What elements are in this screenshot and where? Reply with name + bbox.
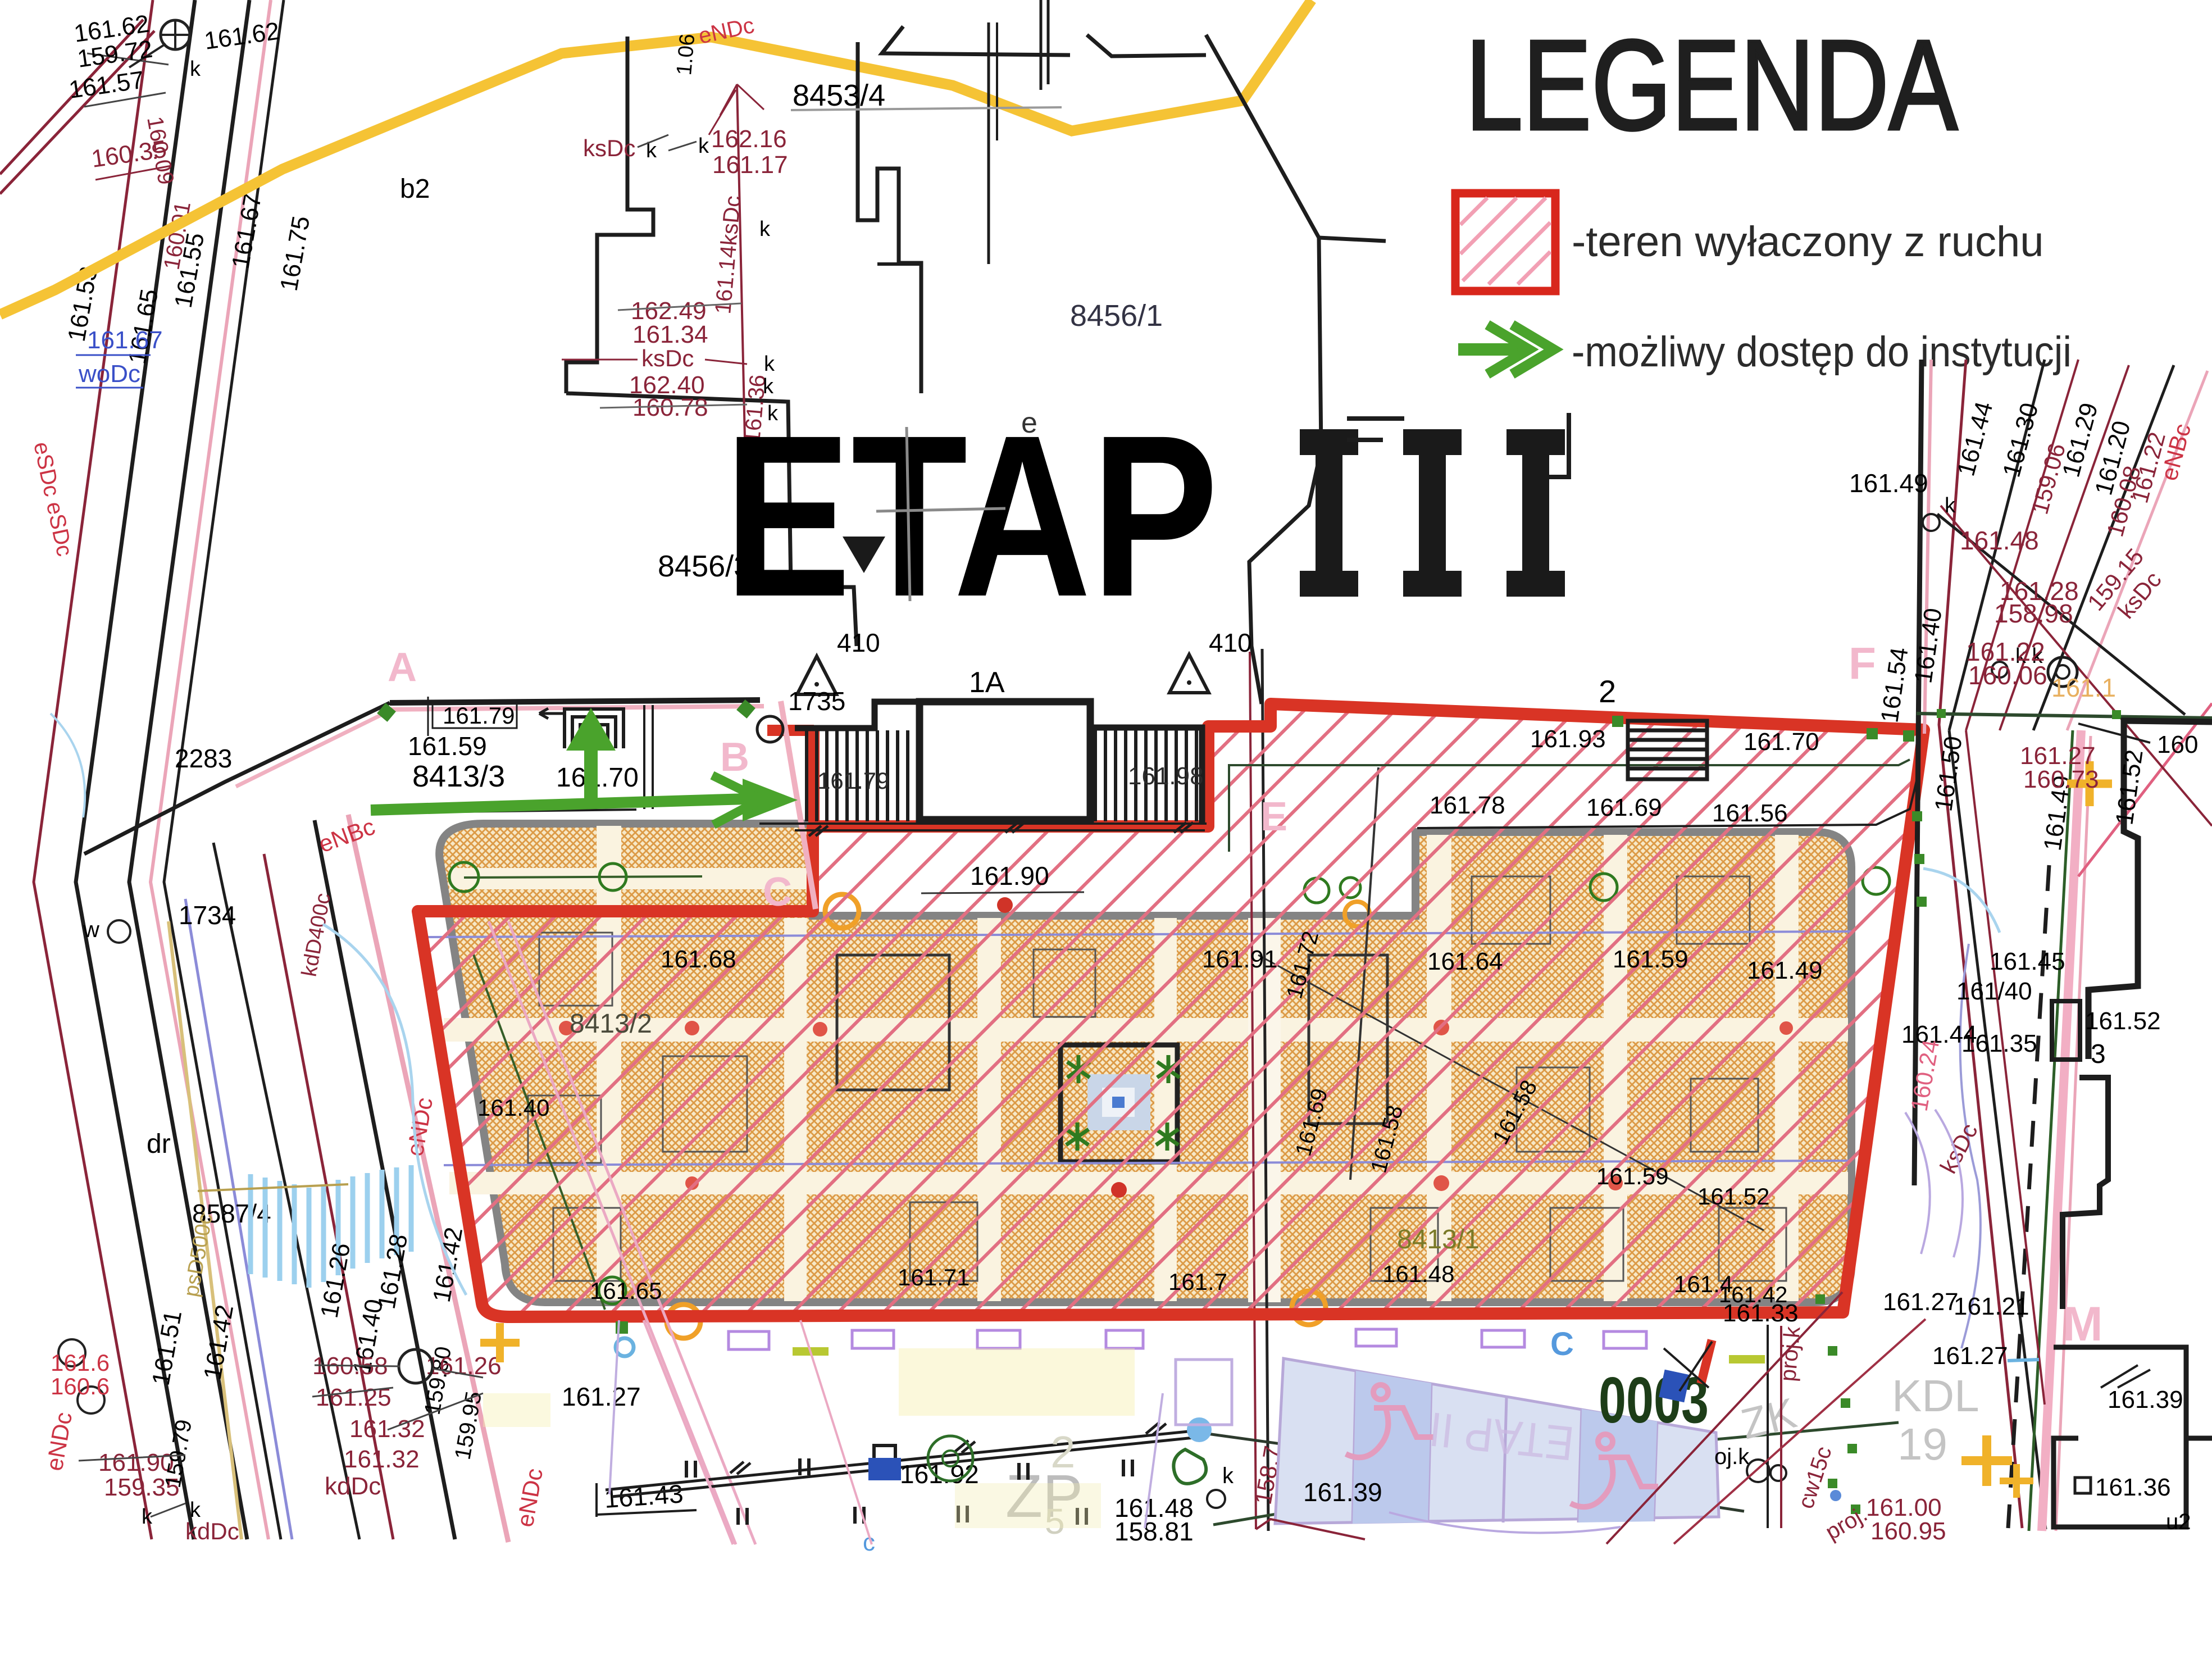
svg-text:161.56: 161.56 <box>1712 799 1788 827</box>
svg-text:8413/3: 8413/3 <box>412 760 505 793</box>
svg-text:-możliwy dostęp do instytucji: -możliwy dostęp do instytucji <box>1572 328 2072 376</box>
svg-text:k: k <box>1222 1463 1234 1488</box>
svg-text:161.39: 161.39 <box>1303 1478 1382 1507</box>
svg-text:160.95: 160.95 <box>1870 1517 1946 1545</box>
svg-text:kdDc: kdDc <box>185 1518 239 1544</box>
svg-text:3: 3 <box>2091 1039 2106 1069</box>
svg-text:161.65: 161.65 <box>590 1278 662 1304</box>
svg-text:8453/4: 8453/4 <box>793 79 885 112</box>
svg-text:woDc: woDc <box>78 360 140 388</box>
svg-text:161.52: 161.52 <box>1697 1183 1769 1210</box>
svg-text:161.26: 161.26 <box>426 1352 502 1380</box>
svg-text:161.69: 161.69 <box>1586 794 1662 821</box>
svg-text:158.98: 158.98 <box>1994 599 2073 628</box>
svg-text:161.93: 161.93 <box>1530 725 1606 753</box>
svg-text:161.25: 161.25 <box>316 1384 392 1411</box>
svg-text:8413/1: 8413/1 <box>1397 1225 1480 1255</box>
svg-text:161.49: 161.49 <box>1747 957 1823 984</box>
svg-text:8413/2: 8413/2 <box>570 1009 652 1039</box>
svg-text:161.6: 161.6 <box>51 1349 110 1376</box>
svg-text:161.39: 161.39 <box>2108 1386 2183 1413</box>
svg-text:ETAP: ETAP <box>724 387 1218 644</box>
svg-text:1.06: 1.06 <box>672 33 699 76</box>
svg-text:161.98: 161.98 <box>1128 762 1204 790</box>
svg-text:161.52: 161.52 <box>2085 1007 2161 1035</box>
svg-text:8456/1: 8456/1 <box>1070 299 1163 333</box>
svg-text:161.71: 161.71 <box>898 1264 970 1290</box>
svg-text:161/40: 161/40 <box>1956 978 2032 1005</box>
svg-text:160: 160 <box>2157 731 2198 758</box>
svg-text:161.78: 161.78 <box>1430 792 1505 819</box>
svg-text:oj.k: oj.k <box>1714 1444 1750 1469</box>
svg-text:k: k <box>1945 494 1956 517</box>
svg-text:160.06: 160.06 <box>1968 661 2047 690</box>
svg-text:161.64: 161.64 <box>1427 948 1503 975</box>
svg-text:k: k <box>764 352 775 376</box>
svg-text:161.36: 161.36 <box>2095 1474 2171 1501</box>
svg-text:161.48: 161.48 <box>1960 526 2039 555</box>
svg-text:161.27: 161.27 <box>562 1382 641 1411</box>
svg-text:kdDc: kdDc <box>325 1472 381 1500</box>
svg-text:C: C <box>1550 1326 1574 1362</box>
svg-text:1734: 1734 <box>179 901 236 930</box>
svg-text:k: k <box>759 217 771 241</box>
svg-text:161.45: 161.45 <box>1990 948 2065 975</box>
svg-text:161.27: 161.27 <box>1932 1342 2008 1370</box>
svg-text:161.79: 161.79 <box>443 702 515 729</box>
svg-text:k: k <box>190 1498 201 1522</box>
svg-text:161.68: 161.68 <box>661 946 736 973</box>
svg-text:160.73: 160.73 <box>2023 766 2099 793</box>
svg-text:2: 2 <box>1050 1427 1076 1477</box>
svg-text:161.59: 161.59 <box>1596 1163 1668 1189</box>
svg-text:161.40: 161.40 <box>477 1094 549 1121</box>
svg-text:ksDc: ksDc <box>583 135 635 161</box>
svg-text:1A: 1A <box>969 666 1005 699</box>
svg-text:161.79: 161.79 <box>817 767 889 794</box>
svg-text:KDL: KDL <box>1892 1371 1979 1421</box>
svg-text:161.59: 161.59 <box>408 731 487 761</box>
svg-text:162.16: 162.16 <box>711 125 787 153</box>
svg-text:w: w <box>83 917 99 942</box>
svg-text:161.17: 161.17 <box>712 151 788 179</box>
svg-text:1735: 1735 <box>788 687 845 716</box>
svg-text:161.7: 161.7 <box>1168 1269 1227 1295</box>
svg-text:161.90: 161.90 <box>970 861 1049 890</box>
svg-text:M: M <box>2063 1297 2103 1351</box>
svg-text:161.91: 161.91 <box>1202 946 1278 973</box>
svg-text:proj.k: proj.k <box>1776 1325 1805 1383</box>
svg-text:158.81: 158.81 <box>1114 1517 1194 1546</box>
svg-text:u2: u2 <box>2166 1510 2191 1534</box>
svg-text:-teren wyłaczony z ruchu: -teren wyłaczony z ruchu <box>1572 218 2044 266</box>
svg-text:161.1: 161.1 <box>2051 673 2116 702</box>
svg-text:161.70: 161.70 <box>1744 728 1819 756</box>
svg-text:C: C <box>763 870 792 915</box>
svg-text:161.21: 161.21 <box>1954 1293 2029 1320</box>
svg-text:dr: dr <box>147 1129 171 1159</box>
svg-text:A: A <box>388 645 417 690</box>
svg-text:k: k <box>190 57 201 81</box>
svg-text:F: F <box>1849 638 1876 688</box>
svg-text:161.32: 161.32 <box>344 1446 420 1473</box>
svg-text:161.48: 161.48 <box>1382 1261 1454 1287</box>
svg-text:161.67: 161.67 <box>87 326 163 354</box>
svg-text:161.49: 161.49 <box>1849 469 1928 498</box>
svg-text:19: 19 <box>1897 1419 1947 1469</box>
svg-text:161.59: 161.59 <box>1613 946 1688 973</box>
svg-text:161.35: 161.35 <box>1961 1030 2037 1057</box>
svg-text:k: k <box>698 134 709 158</box>
svg-text:b2: b2 <box>400 174 430 204</box>
svg-text:E: E <box>1260 794 1287 839</box>
svg-text:160.6: 160.6 <box>51 1373 110 1399</box>
svg-text:B: B <box>720 735 749 780</box>
svg-text:ksDc: ksDc <box>641 345 694 371</box>
svg-text:LEGENDA: LEGENDA <box>1465 14 1958 157</box>
svg-text:2: 2 <box>1599 674 1616 709</box>
svg-text:161.34: 161.34 <box>632 321 708 348</box>
svg-text:161.33: 161.33 <box>1723 1299 1799 1327</box>
svg-text:161.27: 161.27 <box>1883 1288 1959 1316</box>
svg-text:2283: 2283 <box>175 744 232 773</box>
